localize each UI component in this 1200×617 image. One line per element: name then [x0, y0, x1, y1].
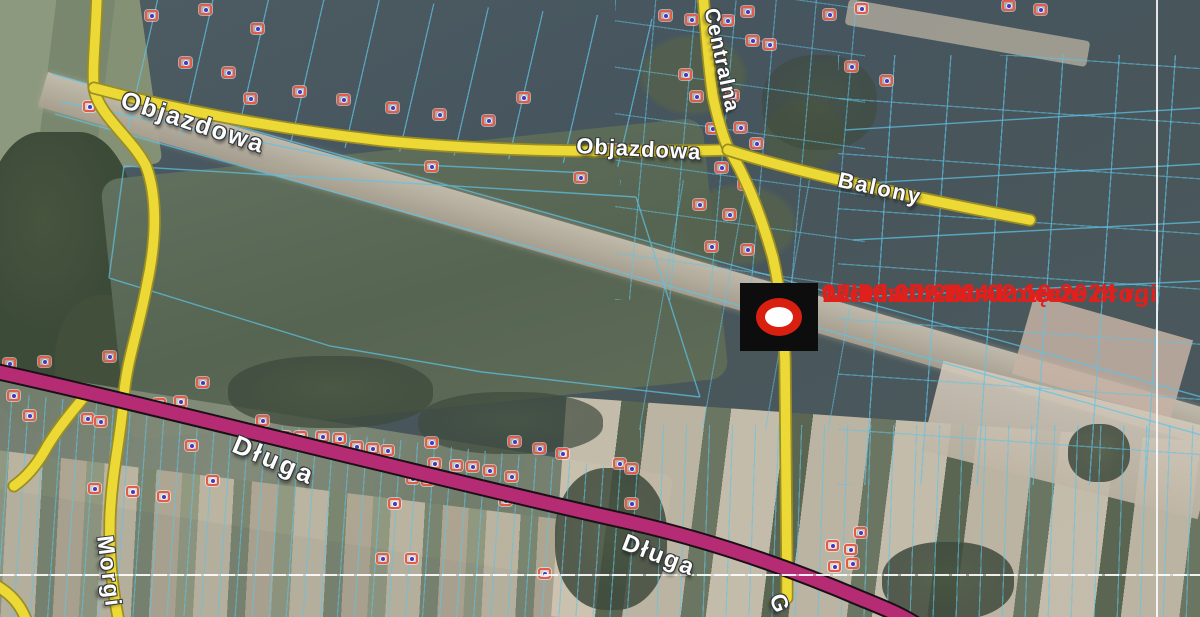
- road-closed-sign-icon: [740, 283, 818, 351]
- road-spur-southwest: [0, 392, 88, 617]
- annotation-line: 12.10.2024 r.: [822, 279, 976, 309]
- no-entry-ring-icon: [756, 298, 802, 336]
- map-grid-line-horizontal: [0, 574, 1200, 576]
- map-canvas[interactable]: Objazdowa Objazdowa Centralna Balony Dłu…: [0, 0, 1200, 617]
